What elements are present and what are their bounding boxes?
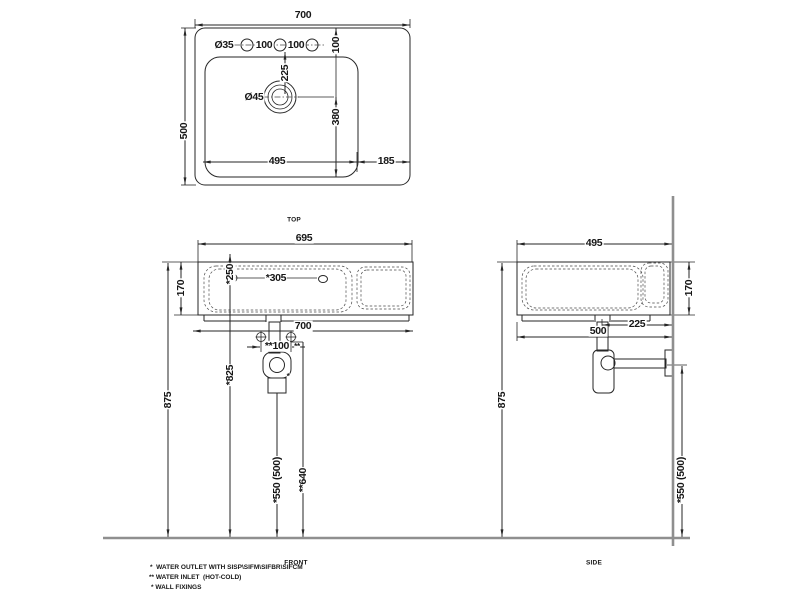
dim-tap-hole-spacing-2: 100 [287,40,306,51]
dim-tap-hole-spacing-1: 100 [255,40,274,51]
dim-top-overall-width: 700 [294,10,313,21]
dim-front-overall-width: 700 [294,321,313,332]
inlet-mark: ** [294,343,300,351]
tap-holes-icon [234,39,324,51]
side-view-linework [497,240,695,537]
overflow-hole-icon [319,276,328,283]
dim-bowl-width: 495 [268,156,287,167]
dim-side-overall-depth: 495 [585,238,604,249]
front-view-linework [162,240,413,537]
footnote-water-outlet: * WATER OUTLET WITH SISP\SIFM\SIFBR\SIFC… [150,564,303,571]
drawing-linework [0,0,800,600]
dim-front-overall-height: 875 [163,391,174,410]
dim-side-depth-total: 500 [589,326,608,337]
technical-drawing-sheet: 700 Ø35 100 100 100 225 Ø45 380 495 185 … [0,0,800,600]
dim-inlet-spacing: **100 [264,341,290,352]
dim-side-overall-height: 875 [497,391,508,410]
dim-fixing-height: *825 [225,364,236,386]
dim-tap-hole-edge-offset: 100 [331,36,342,55]
view-label-top: TOP [287,217,301,224]
dim-side-bowl-height: 170 [684,279,695,298]
dim-tap-hole-dia: Ø35 [214,40,235,51]
dim-drain-dia: Ø45 [244,92,265,103]
dim-outlet-offset: *305 [265,273,287,284]
outlet-mark: * [287,373,290,381]
dim-top-overall-depth: 500 [179,122,190,141]
footnote-wall-fixings: * WALL FIXINGS [151,584,201,591]
view-label-side: SIDE [586,560,602,567]
drain-icon [263,81,299,113]
dim-front-bowl-height: 170 [176,279,187,298]
dim-drain-offset: 225 [280,64,291,83]
front-trap [263,322,291,393]
footnote-water-inlet: ** WATER INLET (HOT-COLD) [149,574,241,581]
dim-outlet-height-front: *550 (500) [272,456,283,504]
dim-front-rim-width: 695 [295,233,314,244]
dim-drain-to-wall: 225 [628,319,647,330]
dim-inlet-height: **640 [298,467,309,493]
dim-fixing-offset: *250 [225,263,236,285]
dim-outlet-height-side: *550 (500) [676,456,687,504]
dim-deck-width: 185 [377,156,396,167]
dim-drain-to-front: 380 [331,108,342,127]
